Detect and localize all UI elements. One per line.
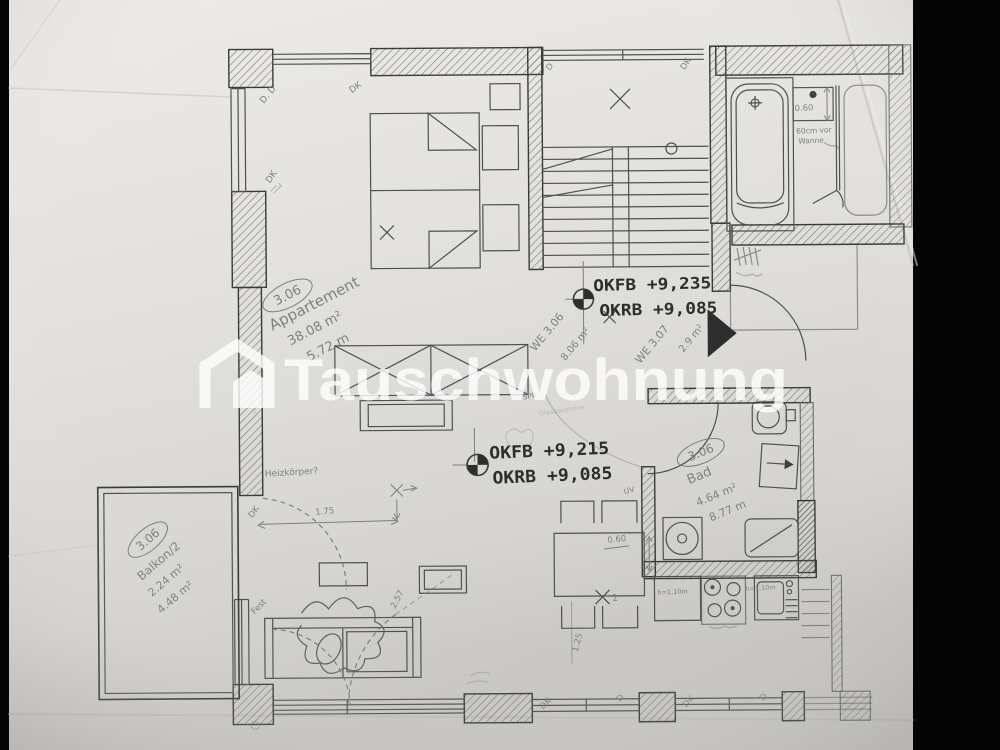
floorplan-svg: 3.06 Appartement 38.08 m² 5.72 m 3.06 Ba… bbox=[0, 0, 1000, 750]
tub-clearance-note: Wanne bbox=[798, 136, 824, 146]
layer-note: st bbox=[251, 408, 257, 415]
level-okfb-upper: OKFB +9,235 bbox=[593, 273, 711, 295]
floorplan-photo: 3.06 Appartement 38.08 m² 5.72 m 3.06 Ba… bbox=[0, 0, 1000, 750]
dim-label: 0.60 bbox=[607, 534, 627, 546]
tub-clearance-note: 60cm vor bbox=[796, 125, 833, 136]
counter-height: h=1,10m bbox=[657, 587, 688, 596]
dim-label: 1.75 bbox=[315, 506, 335, 518]
watermark-brand: Tauschwohnung bbox=[284, 348, 788, 413]
level-okrb-upper: OKRB +9,085 bbox=[599, 298, 717, 320]
watermark: Tauschwohnung bbox=[205, 345, 788, 413]
dim-label: 0.60 bbox=[794, 103, 813, 114]
